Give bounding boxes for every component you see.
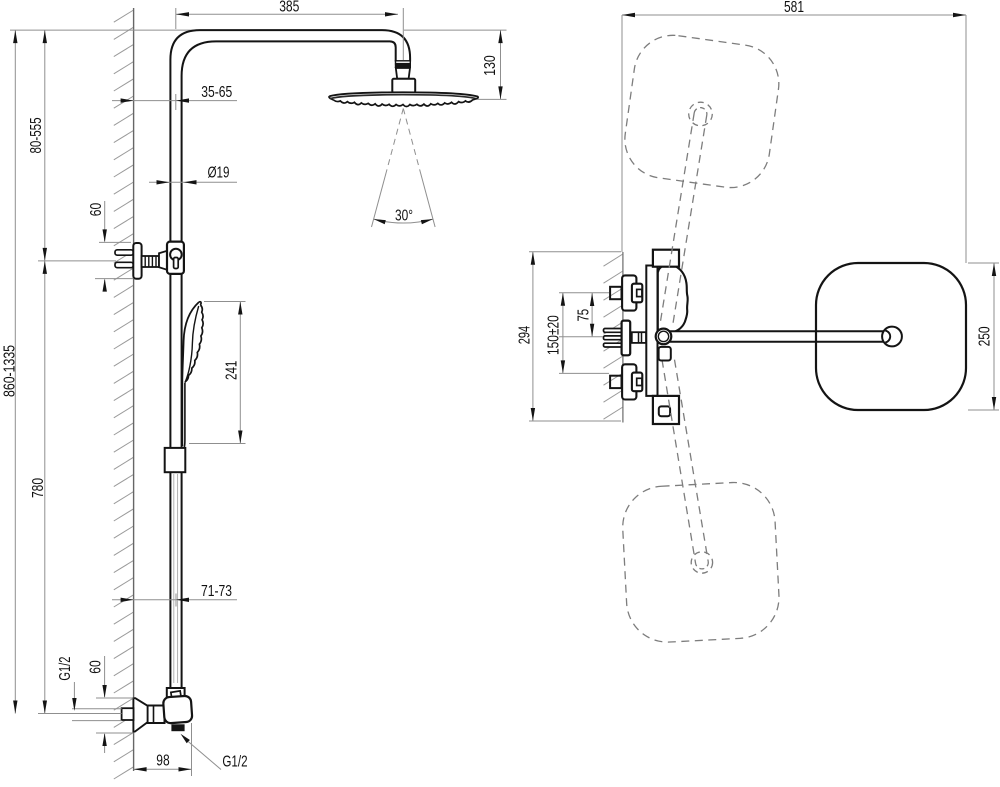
svg-text:G1/2: G1/2	[222, 754, 247, 771]
svg-text:G1/2: G1/2	[57, 657, 74, 681]
svg-text:860-1335: 860-1335	[2, 345, 19, 397]
svg-text:250: 250	[977, 326, 994, 346]
svg-text:130: 130	[482, 55, 499, 76]
svg-text:Ø19: Ø19	[208, 165, 230, 182]
svg-text:581: 581	[784, 0, 804, 16]
svg-text:241: 241	[224, 361, 241, 380]
svg-text:294: 294	[516, 326, 533, 345]
svg-text:150±20: 150±20	[546, 315, 563, 355]
svg-text:71-73: 71-73	[201, 583, 232, 600]
svg-text:75: 75	[575, 309, 592, 322]
svg-text:385: 385	[279, 0, 299, 16]
svg-text:780: 780	[30, 478, 47, 498]
svg-text:60: 60	[88, 203, 105, 217]
svg-text:60: 60	[87, 660, 104, 674]
svg-text:80-555: 80-555	[28, 118, 45, 154]
svg-text:35-65: 35-65	[201, 84, 232, 101]
svg-text:98: 98	[156, 752, 169, 769]
svg-text:30°: 30°	[395, 208, 413, 225]
